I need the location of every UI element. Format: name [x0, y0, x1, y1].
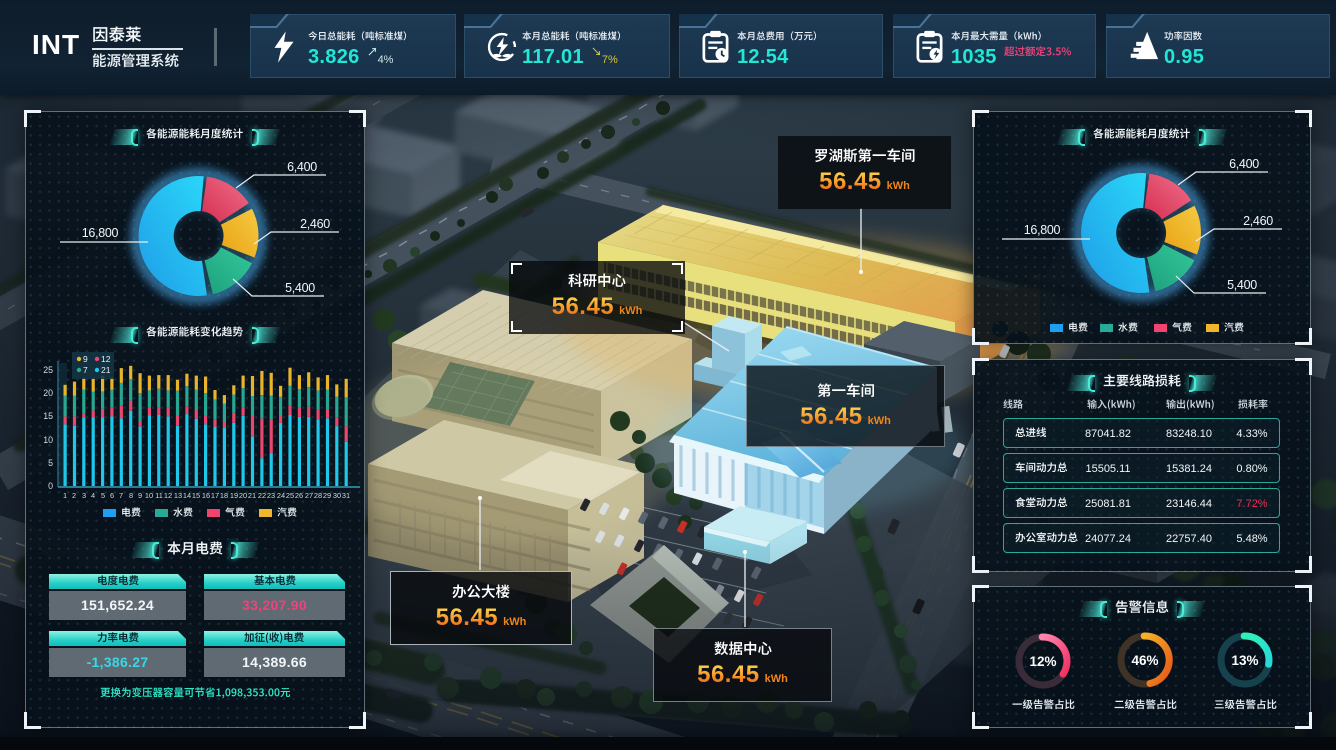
svg-text:18: 18	[220, 491, 228, 500]
svg-text:13%: 13%	[1231, 653, 1258, 668]
svg-text:20: 20	[239, 491, 247, 500]
svg-text:16: 16	[202, 491, 210, 500]
svg-text:5: 5	[101, 491, 105, 500]
svg-text:7: 7	[119, 491, 123, 500]
svg-text:26: 26	[295, 491, 303, 500]
svg-text:6: 6	[110, 491, 114, 500]
svg-text:25: 25	[43, 365, 53, 375]
svg-text:29: 29	[323, 491, 331, 500]
svg-text:16,800: 16,800	[1024, 223, 1061, 237]
svg-text:12%: 12%	[1029, 654, 1056, 669]
svg-text:9: 9	[83, 354, 88, 364]
svg-text:5,400: 5,400	[285, 281, 315, 295]
svg-text:0: 0	[48, 481, 53, 491]
svg-text:2: 2	[72, 491, 76, 500]
svg-text:21: 21	[248, 491, 256, 500]
svg-text:16,800: 16,800	[82, 226, 119, 240]
svg-text:20: 20	[43, 388, 53, 398]
svg-text:15: 15	[43, 411, 53, 421]
svg-text:14: 14	[183, 491, 191, 500]
svg-text:3: 3	[82, 491, 86, 500]
svg-text:11: 11	[155, 491, 163, 500]
svg-text:5,400: 5,400	[1227, 278, 1257, 292]
svg-text:31: 31	[342, 491, 350, 500]
svg-text:6,400: 6,400	[1229, 157, 1259, 171]
svg-text:5: 5	[48, 458, 53, 468]
svg-text:2,460: 2,460	[300, 217, 330, 231]
svg-text:22: 22	[258, 491, 266, 500]
svg-text:23: 23	[267, 491, 275, 500]
svg-text:12: 12	[101, 354, 111, 364]
svg-text:27: 27	[305, 491, 313, 500]
svg-text:7: 7	[83, 365, 88, 375]
svg-text:21: 21	[101, 365, 111, 375]
svg-text:25: 25	[286, 491, 294, 500]
svg-text:28: 28	[314, 491, 322, 500]
svg-text:24: 24	[277, 491, 285, 500]
svg-text:19: 19	[230, 491, 238, 500]
svg-text:10: 10	[145, 491, 153, 500]
svg-text:9: 9	[138, 491, 142, 500]
svg-text:8: 8	[129, 491, 133, 500]
svg-text:15: 15	[192, 491, 200, 500]
svg-text:2,460: 2,460	[1243, 214, 1273, 228]
svg-text:6,400: 6,400	[287, 160, 317, 174]
svg-text:46%: 46%	[1131, 653, 1158, 668]
svg-text:12: 12	[164, 491, 172, 500]
svg-text:4: 4	[91, 491, 95, 500]
svg-text:17: 17	[211, 491, 219, 500]
svg-text:13: 13	[174, 491, 182, 500]
svg-text:10: 10	[43, 435, 53, 445]
svg-text:30: 30	[333, 491, 341, 500]
svg-text:1: 1	[63, 491, 67, 500]
